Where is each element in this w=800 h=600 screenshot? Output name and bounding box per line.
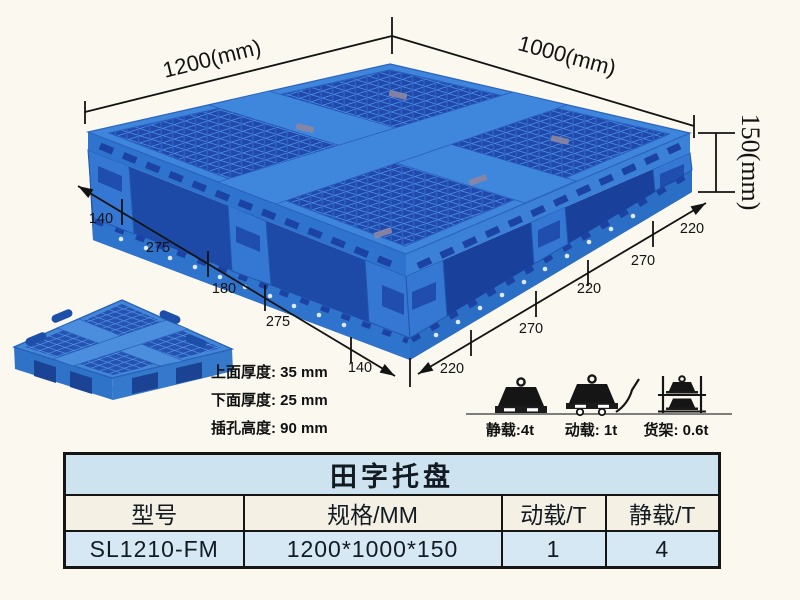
product-spec-sheet: 1200(mm) 1000(mm) 150(mm) 140 275 180 27…	[0, 0, 800, 600]
chain-label: 220	[440, 361, 464, 377]
cell-dynamic-load: 1	[502, 531, 606, 568]
chain-label: 270	[519, 321, 543, 337]
static-load-label: 静载:4t	[486, 421, 534, 439]
table-row: SL1210-FM 1200*1000*150 1 4	[65, 531, 720, 568]
chain-label: 220	[680, 221, 704, 237]
height-dim-label: 150(mm)	[736, 114, 765, 211]
load-ratings: 静载:4t 动载: 1t 货架: 0.6t	[466, 375, 732, 439]
header-static-load: 静载/T	[606, 495, 720, 531]
header-dynamic-load: 动载/T	[502, 495, 606, 531]
cell-static-load: 4	[606, 531, 720, 568]
header-model: 型号	[65, 495, 244, 531]
chain-label: 220	[577, 281, 601, 297]
small-pallet-photo	[14, 300, 233, 400]
cell-model: SL1210-FM	[65, 531, 244, 568]
weight-on-pallet-icon	[495, 378, 547, 413]
chain-label: 180	[212, 281, 236, 297]
cell-spec: 1200*1000*150	[244, 531, 502, 568]
pallet-illustration	[88, 64, 692, 360]
thickness-note-top: 上面厚度: 35 mm	[211, 363, 328, 381]
rack-load-label: 货架: 0.6t	[643, 421, 708, 439]
chain-label: 275	[146, 240, 170, 256]
width-dim-label: 1000(mm)	[515, 30, 618, 80]
load-labels: 静载:4t 动载: 1t 货架: 0.6t	[486, 421, 709, 439]
thickness-note-bottom: 下面厚度: 25 mm	[211, 391, 328, 409]
length-dim-label: 1200(mm)	[160, 34, 263, 83]
dynamic-load-label: 动载: 1t	[565, 421, 618, 439]
table-title: 田字托盘	[65, 454, 720, 496]
thickness-notes: 上面厚度: 35 mm 下面厚度: 25 mm 插孔高度: 90 mm	[211, 363, 328, 437]
spec-table: 田字托盘 型号 规格/MM 动载/T 静载/T SL1210-FM 1200*1…	[63, 452, 721, 569]
weights-on-rack-icon	[658, 376, 706, 413]
chain-label: 140	[89, 211, 113, 227]
chain-label: 270	[631, 253, 655, 269]
chain-label: 140	[348, 360, 372, 376]
header-spec: 规格/MM	[244, 495, 502, 531]
chain-label: 275	[266, 314, 290, 330]
thickness-note-slot: 插孔高度: 90 mm	[211, 419, 328, 437]
weight-on-trolley-icon	[566, 375, 639, 415]
